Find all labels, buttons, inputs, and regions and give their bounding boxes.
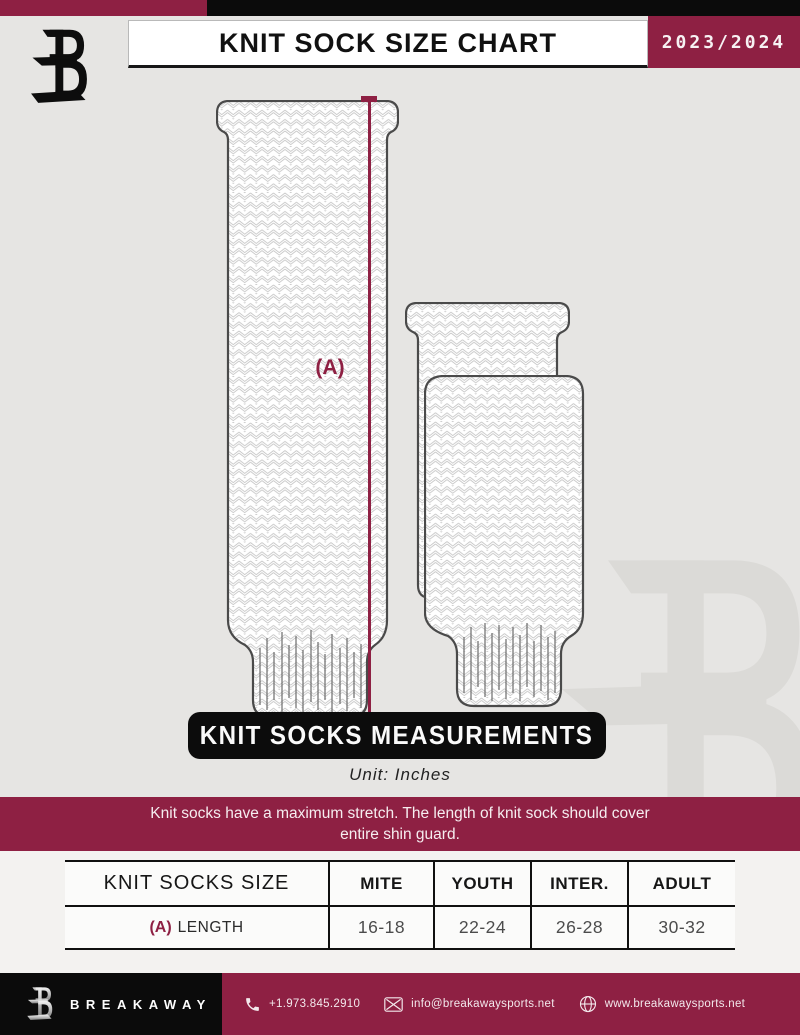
top-strip-black [207, 0, 800, 16]
size-table: KNIT SOCKS SIZE MITE YOUTH INTER. ADULT … [65, 860, 735, 950]
table-header-mite: MITE [328, 862, 433, 907]
note-line-1: Knit socks have a maximum stretch. The l… [150, 803, 649, 824]
phone-icon [244, 996, 261, 1013]
footer-brand-name: BREAKAWAY [70, 997, 212, 1012]
sock-illustration-large [216, 100, 399, 720]
length-value-youth: 22-24 [433, 907, 530, 948]
unit-label: Unit: Inches [0, 765, 800, 785]
measurement-label-A: (A) [300, 356, 360, 380]
length-value-mite: 16-18 [328, 907, 433, 948]
table-header-sizes: KNIT SOCKS SIZE [65, 862, 328, 907]
table-header-inter: INTER. [530, 862, 627, 907]
knit-sock-size-chart-page: KNIT SOCK SIZE CHART 2023/2024 [0, 0, 800, 1035]
footer-email-text: info@breakawaysports.net [411, 998, 555, 1010]
footer-brand-block: BREAKAWAY [0, 973, 222, 1035]
footer-contact-bar: +1.973.845.2910 info@breakawaysports.net… [222, 973, 800, 1035]
footer-phone-link[interactable]: +1.973.845.2910 [244, 996, 360, 1013]
footer-email-link[interactable]: info@breakawaysports.net [384, 997, 555, 1012]
footer-website-link[interactable]: www.breakawaysports.net [579, 995, 746, 1013]
top-strip-maroon [0, 0, 207, 16]
measurements-banner: KNIT SOCKS MEASUREMENTS [188, 712, 606, 759]
footer: BREAKAWAY +1.973.845.2910 info@breakaway… [0, 973, 800, 1035]
measurement-key: (A) [149, 919, 171, 937]
sock-diagram: (A) [0, 16, 800, 797]
footer-b-logo [26, 984, 58, 1024]
table-header-youth: YOUTH [433, 862, 530, 907]
globe-icon [579, 995, 597, 1013]
measurement-name: LENGTH [178, 919, 244, 937]
length-value-inter: 26-28 [530, 907, 627, 948]
length-value-adult: 30-32 [627, 907, 735, 948]
table-header-adult: ADULT [627, 862, 735, 907]
mail-icon [384, 997, 403, 1012]
note-line-2: entire shin guard. [340, 824, 460, 845]
footer-website-text: www.breakawaysports.net [605, 998, 746, 1010]
measurements-banner-title: KNIT SOCKS MEASUREMENTS [200, 720, 593, 751]
measurement-line-A [368, 98, 371, 719]
footer-phone-text: +1.973.845.2910 [269, 998, 360, 1010]
sock-illustration-small [424, 375, 585, 708]
note-banner: Knit socks have a maximum stretch. The l… [0, 797, 800, 851]
table-row-length-label: (A) LENGTH [65, 907, 328, 948]
